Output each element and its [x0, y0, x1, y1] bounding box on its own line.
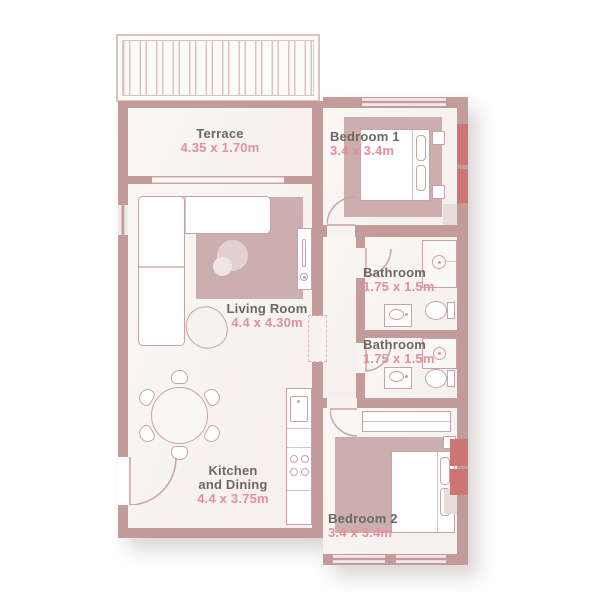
pillow	[416, 135, 426, 161]
coffee-table-small	[213, 257, 232, 276]
wall-terrace-stub-right	[284, 176, 323, 184]
dining-chair	[171, 370, 188, 384]
interior-door-bedroom1	[327, 196, 356, 226]
bathroom-1-label: Bathroom 1.75 x 1.5m	[363, 266, 435, 294]
interior-door-bedroom2	[330, 408, 358, 437]
tv-screen	[302, 239, 306, 267]
wardrobe-accent	[457, 124, 468, 165]
sofa-seam	[138, 266, 185, 268]
room-name-line2: and Dining	[158, 478, 308, 492]
counter-divider	[286, 428, 312, 429]
room-dimensions: 4.4 x 3.75m	[158, 492, 308, 506]
sink-faucet	[297, 400, 300, 403]
room-name-line1: Kitchen	[158, 464, 308, 478]
bedroom-2-label: Bedroom 2 3.4 x 3.4m	[328, 512, 398, 540]
toilet	[425, 369, 447, 388]
wardrobe-accent	[457, 169, 468, 203]
wall-left-upper	[118, 101, 128, 457]
bathroom-2-label: Bathroom 1.75 x 1.5m	[363, 338, 435, 366]
toilet-tank	[447, 370, 455, 387]
nightstand	[432, 185, 445, 199]
mattress-line	[437, 452, 438, 532]
shower-head-dot	[438, 261, 441, 264]
closet	[443, 204, 457, 226]
floor-plan: Terrace 4.35 x 1.70m Bedroom 1 3.4 x 3.4…	[0, 0, 600, 600]
sliding-door	[152, 176, 284, 184]
washbasin-faucet	[405, 313, 408, 316]
room-dimensions: 3.4 x 3.4m	[328, 526, 398, 540]
terrace-pergola	[116, 34, 320, 102]
toilet	[425, 301, 447, 320]
room-name: Bathroom	[363, 338, 435, 352]
washbasin-bowl	[389, 371, 404, 382]
room-name: Bathroom	[363, 266, 435, 280]
shower-head-dot	[438, 352, 441, 355]
bedroom1-door-opening	[327, 225, 355, 237]
tv-knob-dot	[303, 276, 306, 279]
window	[396, 555, 446, 563]
pillow	[440, 457, 450, 485]
kitchen-dining-label: Kitchen and Dining 4.4 x 3.75m	[158, 464, 308, 506]
bedroom-1-label: Bedroom 1 3.4 x 3.4m	[330, 130, 400, 158]
wall-terrace-stub-left	[118, 176, 152, 184]
room-name: Terrace	[128, 127, 312, 141]
room-name: Bedroom 2	[328, 512, 398, 526]
pergola-slats-icon	[122, 40, 314, 96]
window	[333, 555, 385, 563]
toilet-tank	[447, 302, 455, 319]
wall-terrace-top	[118, 101, 323, 108]
stove-burner	[290, 455, 298, 463]
room-dimensions: 1.75 x 1.5m	[363, 280, 435, 294]
wardrobe-accent	[450, 439, 468, 466]
shower-arm	[446, 261, 457, 262]
nightstand	[432, 131, 445, 145]
room-dimensions: 3.4 x 3.4m	[330, 144, 400, 158]
living-room-label: Living Room 4.4 x 4.30m	[192, 302, 342, 330]
washbasin-faucet	[405, 375, 408, 378]
mattress-line	[412, 130, 413, 200]
counter-divider	[286, 447, 312, 448]
sofa-seam	[184, 196, 186, 234]
terrace-label: Terrace 4.35 x 1.70m	[128, 127, 312, 155]
wall-bottom-left-block	[118, 528, 323, 538]
entry-door-opening	[118, 457, 128, 505]
window	[118, 205, 128, 235]
stove-burner	[301, 455, 309, 463]
room-dimensions: 1.75 x 1.5m	[363, 352, 435, 366]
dining-table	[151, 387, 208, 444]
room-dimensions: 4.4 x 4.30m	[192, 316, 342, 330]
room-name: Living Room	[192, 302, 342, 316]
bedroom2-door-opening	[327, 398, 357, 408]
wardrobe-line	[362, 421, 451, 422]
pillow	[416, 165, 426, 191]
room-dimensions: 4.35 x 1.70m	[128, 141, 312, 155]
wardrobe-accent	[450, 469, 468, 495]
sofa-chaise	[138, 196, 185, 346]
room-name: Bedroom 1	[330, 130, 400, 144]
window	[362, 98, 446, 106]
washbasin-bowl	[389, 309, 404, 320]
